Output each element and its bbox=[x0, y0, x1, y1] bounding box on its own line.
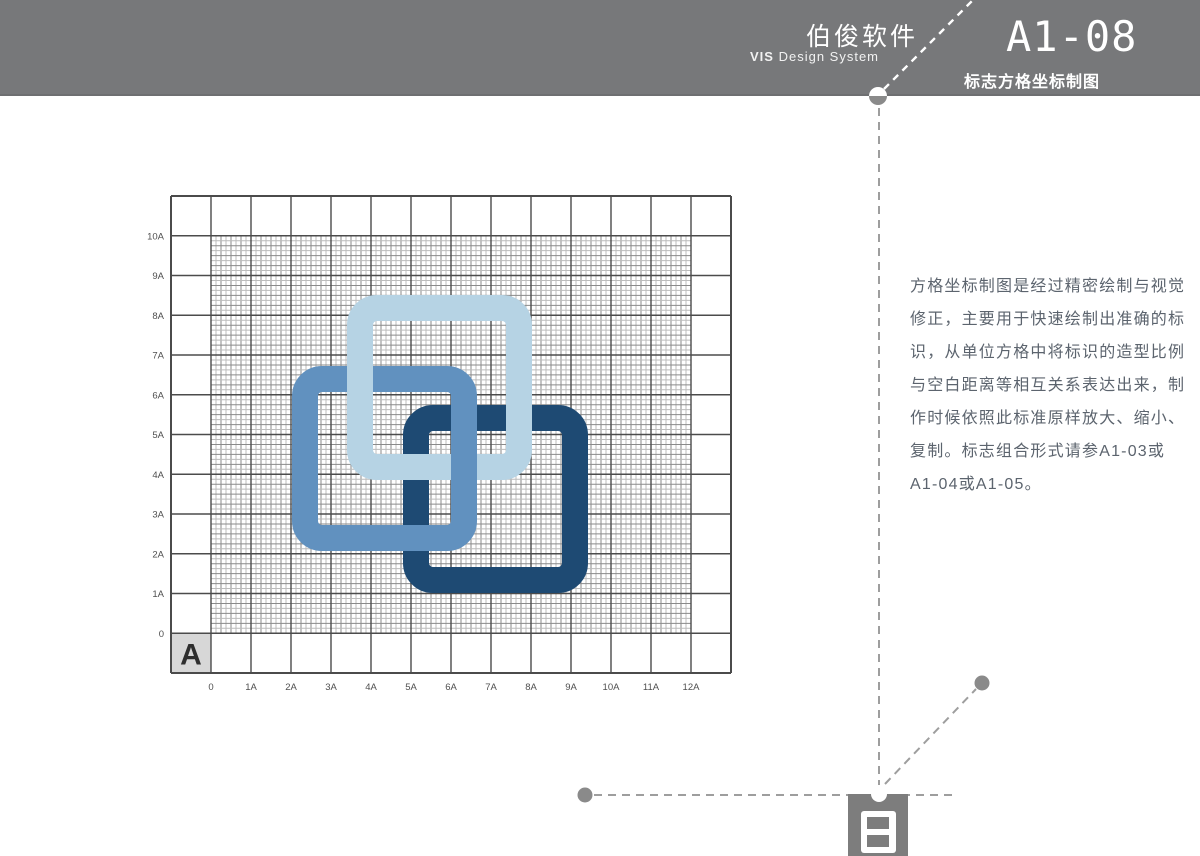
x-axis-tick-label: 10A bbox=[603, 682, 621, 693]
x-axis-tick-label: 2A bbox=[285, 682, 297, 693]
x-axis-tick-label: 11A bbox=[643, 682, 660, 693]
y-axis-tick-label: 8A bbox=[152, 311, 164, 322]
corner-cell-label: A bbox=[180, 638, 202, 671]
x-axis-tick-label: 7A bbox=[485, 682, 497, 693]
guides-group bbox=[578, 1, 990, 856]
manual-page: 伯俊软件 VIS Design System A1-08 标志方格坐标制图 方格… bbox=[0, 0, 1200, 856]
brand-mark-glyph-window-top bbox=[867, 817, 889, 829]
x-axis-labels: 01A2A3A4A5A6A7A8A9A10A11A12A bbox=[208, 682, 700, 693]
brand-mark-placeholder bbox=[848, 786, 908, 856]
y-axis-labels: 10A9A8A7A6A5A4A3A2A1A0 bbox=[147, 231, 165, 640]
y-axis-tick-label: 2A bbox=[152, 549, 164, 560]
diagram-svg: A10A9A8A7A6A5A4A3A2A1A001A2A3A4A5A6A7A8A… bbox=[0, 0, 1200, 856]
y-axis-tick-label: 6A bbox=[152, 390, 164, 401]
header-diagonal-dashed-line bbox=[884, 1, 972, 89]
y-axis-tick-label: 7A bbox=[152, 351, 164, 362]
y-axis-tick-label: 3A bbox=[152, 510, 164, 521]
x-axis-tick-label: 6A bbox=[445, 682, 457, 693]
x-axis-tick-label: 1A bbox=[245, 682, 257, 693]
x-axis-tick-label: 9A bbox=[565, 682, 577, 693]
x-axis-tick-label: 4A bbox=[365, 682, 377, 693]
y-axis-tick-label: 1A bbox=[152, 589, 164, 600]
brand-mark-glyph-window-bottom bbox=[867, 835, 889, 847]
y-axis-tick-label: 0 bbox=[159, 629, 164, 640]
y-axis-tick-label: 9A bbox=[152, 271, 164, 282]
x-axis-tick-label: 12A bbox=[683, 682, 701, 693]
x-axis-tick-label: 8A bbox=[525, 682, 537, 693]
x-axis-tick-label: 0 bbox=[208, 682, 213, 693]
y-axis-tick-label: 4A bbox=[152, 470, 164, 481]
x-axis-tick-label: 5A bbox=[405, 682, 417, 693]
header-marker-dot-bottom bbox=[869, 96, 887, 105]
y-axis-tick-label: 10A bbox=[147, 231, 165, 242]
x-axis-tick-label: 3A bbox=[325, 682, 337, 693]
guide-dot-right bbox=[975, 676, 990, 691]
brand-mark-anchor-dot bbox=[871, 786, 887, 802]
diagonal-dashed-guide bbox=[885, 689, 976, 784]
guide-dot-left bbox=[578, 788, 593, 803]
y-axis-tick-label: 5A bbox=[152, 430, 164, 441]
